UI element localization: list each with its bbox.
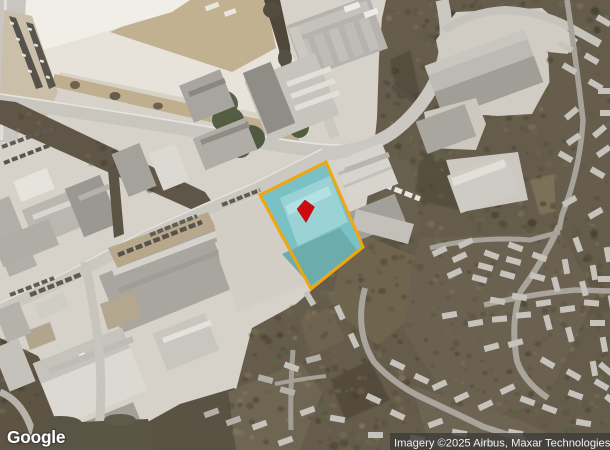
svg-text:Imagery ©2025 Airbus, Maxar Te: Imagery ©2025 Airbus, Maxar Technologies <box>394 437 610 449</box>
svg-text:Google: Google <box>7 427 66 447</box>
